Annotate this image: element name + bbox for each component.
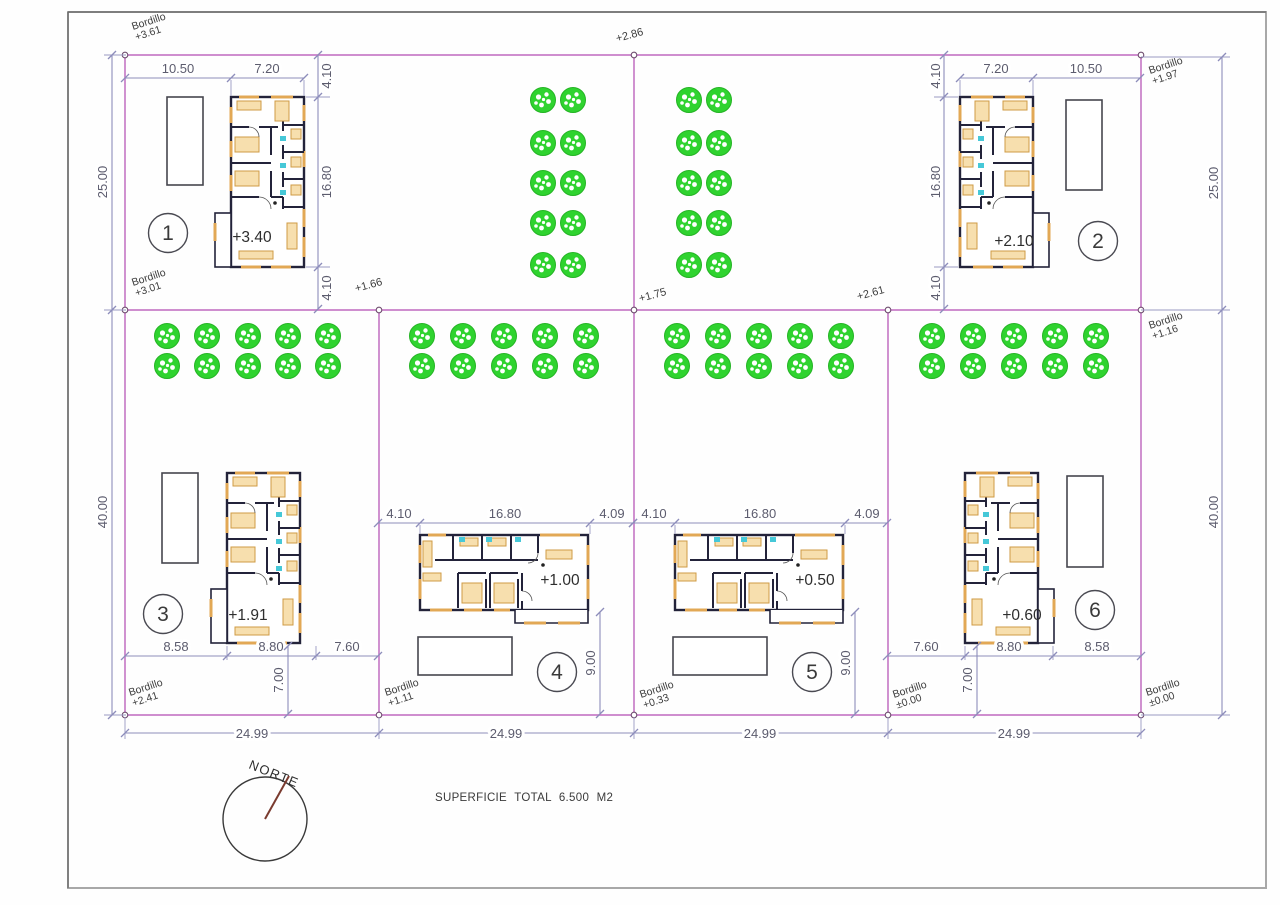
dim-bottom-4: 24.99 xyxy=(998,726,1031,741)
dim-p3-858: 8.58 xyxy=(163,639,188,654)
tree-icon xyxy=(316,354,341,379)
tree-icon xyxy=(533,354,558,379)
tree-icon xyxy=(920,324,945,349)
tree-icon xyxy=(276,354,301,379)
spot-elevation-mid-right: +2.61 xyxy=(856,284,886,303)
dim-bottom-3: 24.99 xyxy=(744,726,777,741)
level-plot-3: +1.91 xyxy=(228,607,267,624)
dim-p1-1680: 16.80 xyxy=(319,166,334,199)
tree-icon xyxy=(492,324,517,349)
pool-6 xyxy=(1067,476,1103,567)
superficie-total-label: SUPERFICIE TOTAL 6.500 M2 xyxy=(435,792,613,804)
bordillo-label-6: Bordillo +1.11 xyxy=(383,677,424,710)
dim-bottom-2: 24.99 xyxy=(490,726,523,741)
tree-icon xyxy=(788,324,813,349)
level-plot-5: +0.50 xyxy=(795,572,835,589)
plot-number-5: 5 xyxy=(806,661,818,684)
tree-icon xyxy=(410,324,435,349)
dim-p1-1050: 10.50 xyxy=(162,61,195,76)
dimension-bottom: 24.99 24.99 24.99 24.99 xyxy=(121,717,1145,741)
dim-p2-1680: 16.80 xyxy=(928,166,943,199)
north-arrow: NORTE xyxy=(223,757,307,861)
tree-icon xyxy=(788,354,813,379)
tree-icon xyxy=(707,131,732,156)
level-plot-6: +0.60 xyxy=(1002,607,1042,624)
dim-p6-880: 8.80 xyxy=(996,639,1021,654)
dim-p2-410a: 4.10 xyxy=(928,63,943,88)
pool-3 xyxy=(162,473,198,563)
tree-icon xyxy=(531,88,556,113)
bordillo-label-9: Bordillo ±0.00 xyxy=(1144,677,1185,710)
dim-p2-410b: 4.10 xyxy=(928,275,943,300)
tree-icon xyxy=(677,88,702,113)
tree-icon xyxy=(707,171,732,196)
pool-5 xyxy=(673,637,767,675)
dim-p5-410: 4.10 xyxy=(641,506,666,521)
tree-icon xyxy=(707,88,732,113)
tree-icon xyxy=(561,131,586,156)
bordillo-label-4: Bordillo +1.16 xyxy=(1147,310,1188,343)
pool-1 xyxy=(167,97,203,185)
tree-icon xyxy=(561,171,586,196)
tree-icon xyxy=(531,171,556,196)
dim-p6-858: 8.58 xyxy=(1084,639,1109,654)
tree-icon xyxy=(155,354,180,379)
tree-icon xyxy=(276,324,301,349)
spot-elevations: +2.86 +1.66 +1.75 +2.61 xyxy=(354,26,886,305)
dim-right-40: 40.00 xyxy=(1206,496,1221,529)
tree-icon xyxy=(195,324,220,349)
tree-icon xyxy=(961,324,986,349)
tree-icon xyxy=(1084,324,1109,349)
dim-p4-1680: 16.80 xyxy=(489,506,522,521)
dim-p6-700: 7.00 xyxy=(960,667,975,692)
tree-icon xyxy=(574,324,599,349)
dimension-left: 25.00 40.00 xyxy=(95,51,126,719)
dim-p4-409: 4.09 xyxy=(599,506,624,521)
plot-number-6: 6 xyxy=(1089,599,1101,622)
dim-p5-409: 4.09 xyxy=(854,506,879,521)
dim-p1-410a: 4.10 xyxy=(319,63,334,88)
tree-icon xyxy=(961,354,986,379)
bordillo-label-2: Bordillo +1.97 xyxy=(1147,55,1188,88)
tree-icon xyxy=(236,324,261,349)
dim-p1-410b: 4.10 xyxy=(319,275,334,300)
dim-p4-900: 9.00 xyxy=(583,650,598,675)
tree-icon xyxy=(531,253,556,278)
tree-icon xyxy=(1002,324,1027,349)
tree-icon xyxy=(533,324,558,349)
dim-p3-880: 8.80 xyxy=(258,639,283,654)
dimension-right: 25.00 40.00 xyxy=(1141,53,1230,719)
bordillo-label-1: Bordillo +3.61 xyxy=(130,11,171,44)
tree-icon xyxy=(561,253,586,278)
tree-icon xyxy=(707,211,732,236)
dim-p2-720: 7.20 xyxy=(983,61,1008,76)
tree-icon xyxy=(829,324,854,349)
dim-p5-1680: 16.80 xyxy=(744,506,777,521)
tree-icon xyxy=(665,354,690,379)
plot-number-2: 2 xyxy=(1092,230,1104,253)
tree-icon xyxy=(829,354,854,379)
tree-icon xyxy=(236,354,261,379)
dim-p3-760: 7.60 xyxy=(334,639,359,654)
tree-icon xyxy=(920,354,945,379)
tree-icon xyxy=(561,211,586,236)
tree-icon xyxy=(561,88,586,113)
bordillo-label-5: Bordillo +2.41 xyxy=(127,677,168,710)
pool-2 xyxy=(1066,100,1102,190)
dim-p4-410: 4.10 xyxy=(386,506,411,521)
plot-number-4: 4 xyxy=(551,661,563,684)
dim-left-40: 40.00 xyxy=(95,496,110,529)
tree-icon xyxy=(747,324,772,349)
tree-icon xyxy=(410,354,435,379)
dim-right-25: 25.00 xyxy=(1206,167,1221,200)
tree-icon xyxy=(531,211,556,236)
bordillo-label-3: Bordillo +3.01 xyxy=(130,267,171,300)
level-plot-1: +3.40 xyxy=(232,229,272,246)
tree-icon xyxy=(531,131,556,156)
tree-icon xyxy=(747,354,772,379)
tree-icon xyxy=(451,324,476,349)
tree-icon xyxy=(677,171,702,196)
tree-icon xyxy=(155,324,180,349)
dim-p6-760: 7.60 xyxy=(913,639,938,654)
plot-number-3: 3 xyxy=(157,603,169,626)
dim-bottom-1: 24.99 xyxy=(236,726,269,741)
spot-elevation-mid-center: +1.75 xyxy=(638,286,668,305)
level-plot-4: +1.00 xyxy=(540,572,580,589)
tree-icon xyxy=(451,354,476,379)
tree-icon xyxy=(1002,354,1027,379)
level-plot-2: +2.10 xyxy=(994,233,1034,250)
spot-elevation-mid-left: +1.66 xyxy=(354,276,384,295)
tree-icon xyxy=(665,324,690,349)
pool-4 xyxy=(418,637,512,675)
dim-p2-1050: 10.50 xyxy=(1070,61,1103,76)
tree-icon xyxy=(574,354,599,379)
dim-left-25: 25.00 xyxy=(95,166,110,199)
spot-elevation-top: +2.86 xyxy=(615,26,645,45)
bordillo-label-7: Bordillo +0.33 xyxy=(638,679,679,712)
tree-icon xyxy=(706,354,731,379)
tree-icon xyxy=(195,354,220,379)
bordillo-label-8: Bordillo ±0.00 xyxy=(891,679,932,712)
tree-icon xyxy=(706,324,731,349)
north-label: NORTE xyxy=(247,757,302,791)
tree-icon xyxy=(316,324,341,349)
dim-p3-700: 7.00 xyxy=(271,667,286,692)
tree-icon xyxy=(707,253,732,278)
dim-p1-720: 7.20 xyxy=(254,61,279,76)
tree-icon xyxy=(1043,354,1068,379)
site-plan-drawing: +3.40 +2.10 +1.91 +1.00 +0.50 +0.60 1 2 … xyxy=(0,0,1280,905)
floor-levels: +3.40 +2.10 +1.91 +1.00 +0.50 +0.60 xyxy=(228,229,1042,624)
tree-icon xyxy=(1084,354,1109,379)
tree-icon xyxy=(677,253,702,278)
tree-icon xyxy=(492,354,517,379)
tree-icon xyxy=(1043,324,1068,349)
tree-icon xyxy=(677,131,702,156)
tree-icon xyxy=(677,211,702,236)
dim-p5-900: 9.00 xyxy=(838,650,853,675)
plot-number-1: 1 xyxy=(162,222,174,245)
